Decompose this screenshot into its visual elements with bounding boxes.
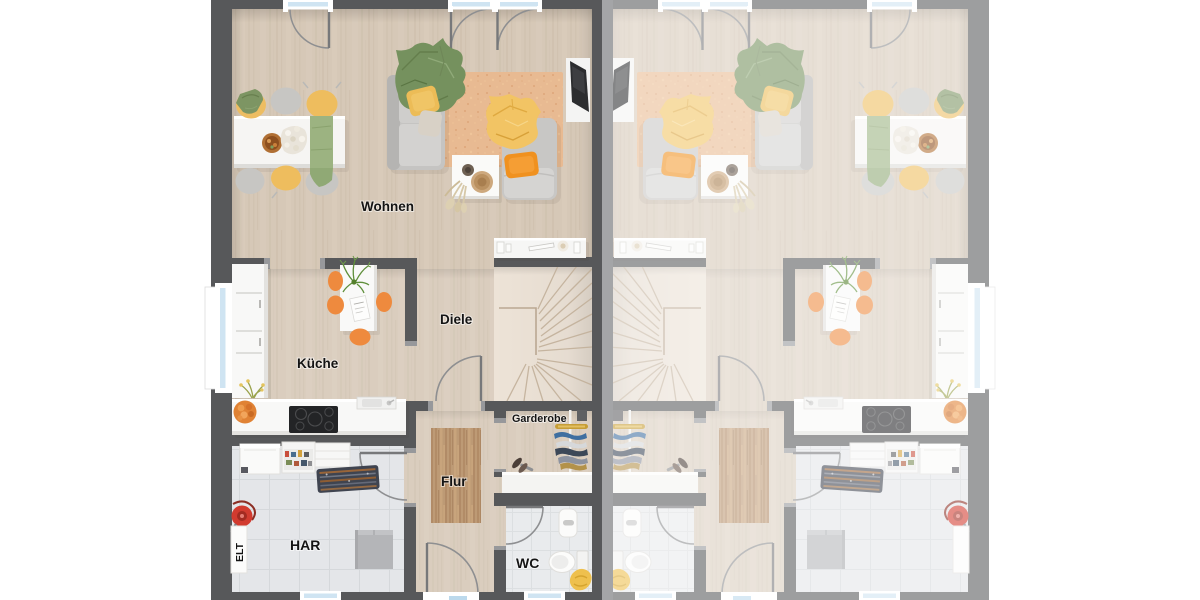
svg-text:Flur: Flur bbox=[441, 474, 467, 489]
svg-text:Garderobe: Garderobe bbox=[512, 413, 567, 425]
svg-text:Küche: Küche bbox=[297, 356, 339, 371]
svg-text:HAR: HAR bbox=[290, 537, 320, 553]
svg-text:Diele: Diele bbox=[440, 312, 473, 327]
svg-text:WC: WC bbox=[516, 555, 539, 571]
svg-text:Wohnen: Wohnen bbox=[361, 199, 414, 214]
svg-text:ELT: ELT bbox=[234, 542, 246, 562]
